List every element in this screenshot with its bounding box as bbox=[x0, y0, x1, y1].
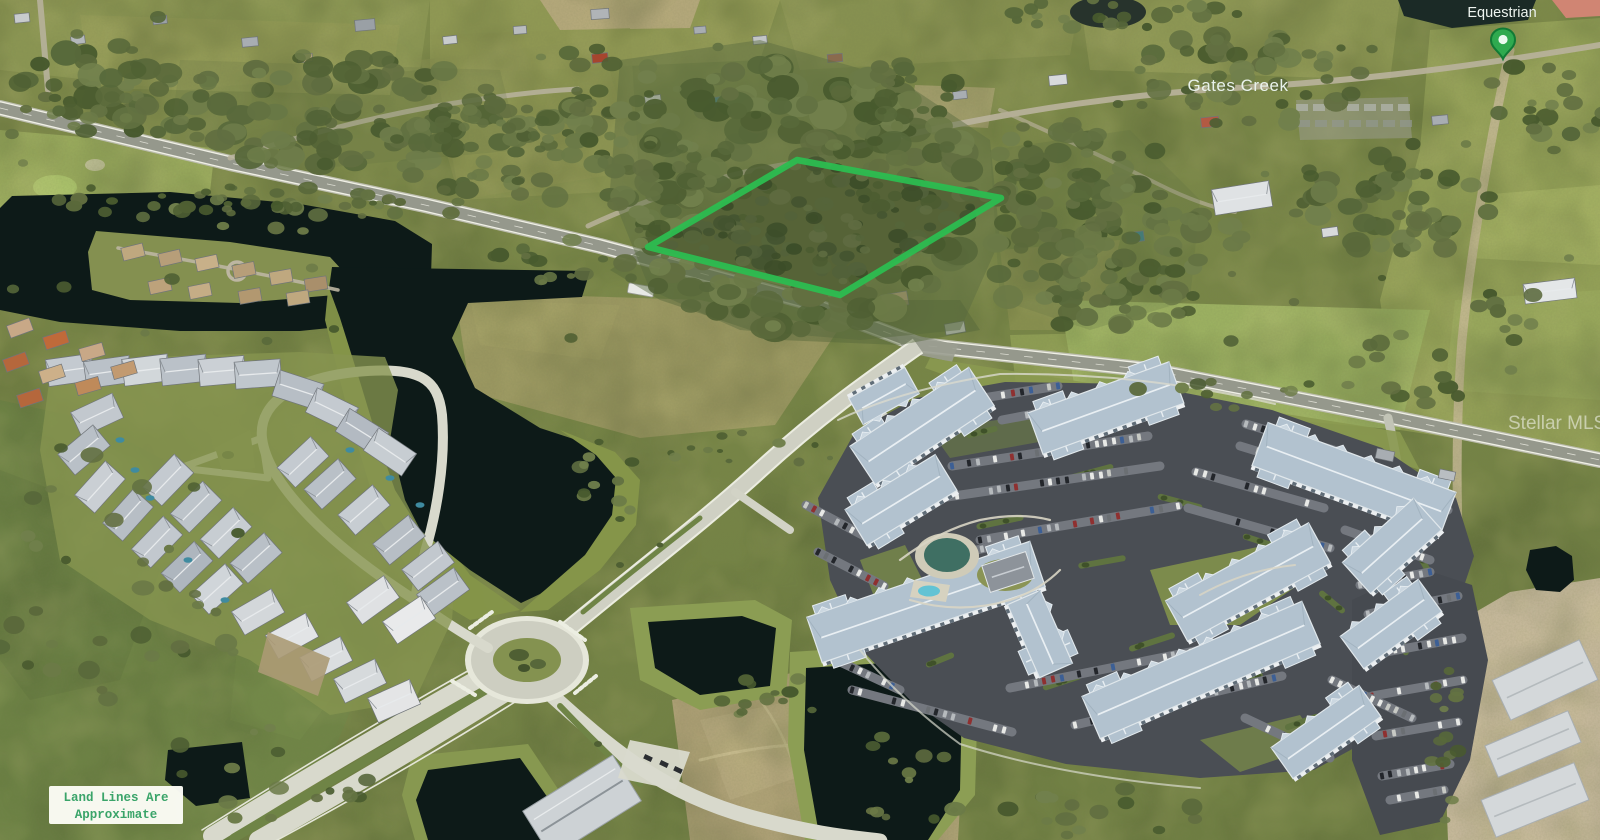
svg-text:Approximate: Approximate bbox=[75, 808, 158, 822]
svg-text:Gates Creek: Gates Creek bbox=[1188, 76, 1289, 95]
svg-text:Land Lines Are: Land Lines Are bbox=[63, 791, 168, 805]
svg-text:Equestrian: Equestrian bbox=[1467, 5, 1536, 21]
svg-text:Stellar MLS: Stellar MLS bbox=[1508, 413, 1600, 434]
